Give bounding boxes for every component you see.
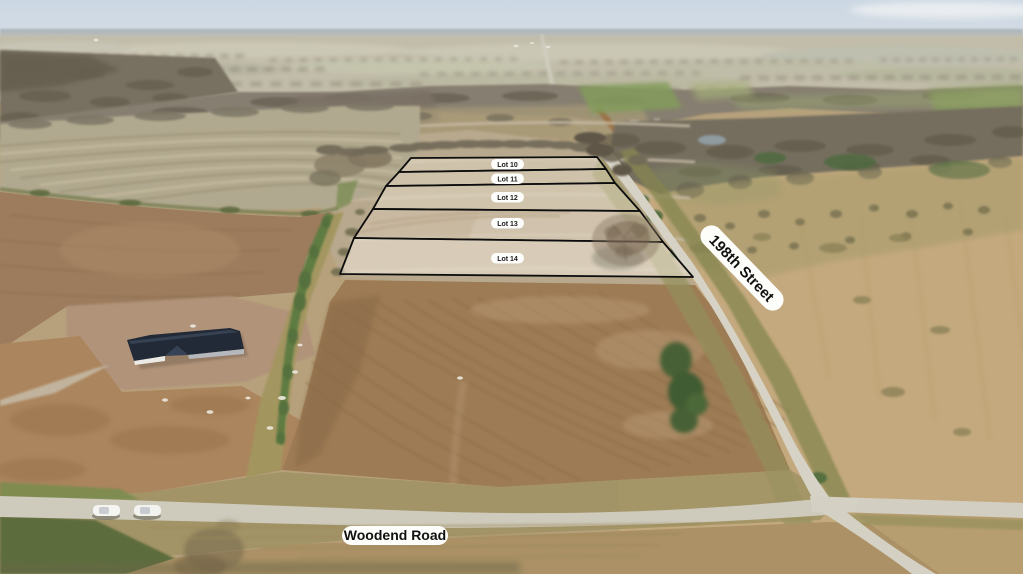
svg-text:Lot 13: Lot 13 (497, 221, 518, 228)
svg-text:Lot 11: Lot 11 (497, 177, 517, 184)
svg-text:Lot 12: Lot 12 (497, 195, 518, 202)
svg-text:Lot 10: Lot 10 (497, 162, 518, 169)
svg-text:Lot 14: Lot 14 (497, 256, 518, 263)
svg-text:Woodend Road: Woodend Road (344, 527, 446, 543)
